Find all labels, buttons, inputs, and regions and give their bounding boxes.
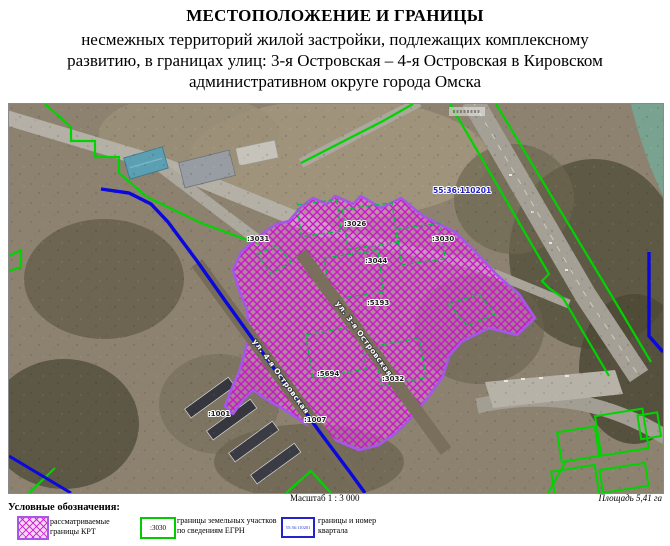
parcel-label: :3044 — [365, 257, 387, 265]
legend-label-egrn: границы земельных участков по сведениям … — [177, 516, 277, 535]
parcel-label: :3031 — [247, 235, 269, 243]
legend-label-krt: рассматриваемые границы КРТ — [50, 517, 110, 536]
map-image: ул. 3-я Островская ул. 4-я Островская 55… — [9, 104, 663, 493]
top-edge-label — [449, 107, 485, 116]
legend-swatch-egrn: :3030 — [140, 517, 176, 539]
legend-label-quarter: границы и номер квартала — [318, 516, 376, 535]
parcel-label: :1001 — [208, 410, 230, 418]
parcel-label: :5193 — [367, 299, 389, 307]
legend-title: Условные обозначения: — [8, 502, 120, 513]
parcel-label: :3032 — [382, 375, 404, 383]
legend-swatch-quarter: 55:36:110201 — [281, 517, 315, 538]
title-subline-3: административном округе города Омска — [0, 71, 670, 92]
legend-swatch-krt — [17, 516, 49, 540]
title-subline-1: несмежных территорий жилой застройки, по… — [0, 29, 670, 50]
parcel-label: :3030 — [432, 235, 454, 243]
title-subline-2: развитию, в границах улиц: 3-я Островска… — [0, 50, 670, 71]
document-title: МЕСТОПОЛОЖЕНИЕ И ГРАНИЦЫ несмежных терри… — [0, 6, 670, 92]
parcel-label: :3026 — [344, 220, 366, 228]
satellite-map: ул. 3-я Островская ул. 4-я Островская 55… — [8, 103, 664, 494]
map-scale: Масштаб 1 : 3 000 — [290, 493, 360, 503]
quarter-number-label: 55:36:110201 — [433, 186, 491, 195]
parcel-label: :1007 — [304, 416, 326, 424]
map-area-value: Площадь 5,41 га — [599, 493, 662, 503]
parcel-label: :5694 — [317, 370, 339, 378]
title-heading: МЕСТОПОЛОЖЕНИЕ И ГРАНИЦЫ — [0, 6, 670, 26]
